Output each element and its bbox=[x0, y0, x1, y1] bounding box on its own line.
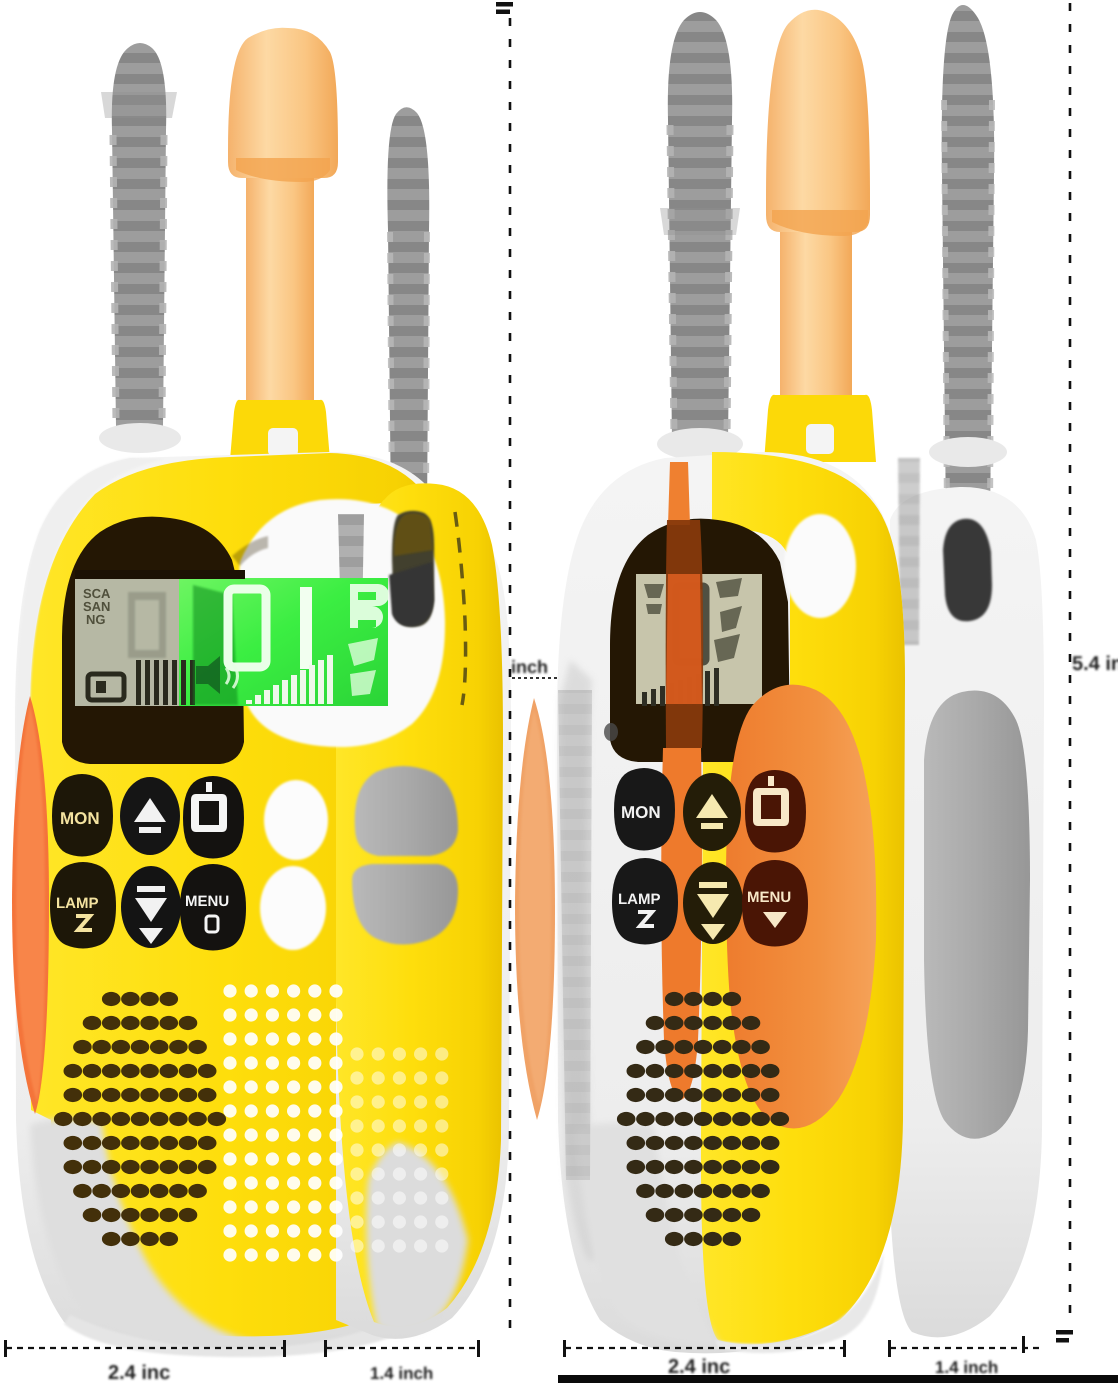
svg-text:2.4 inc: 2.4 inc bbox=[668, 1356, 730, 1378]
svg-text:MENU: MENU bbox=[185, 893, 229, 910]
svg-text:MON: MON bbox=[621, 803, 661, 822]
svg-text:MON: MON bbox=[60, 809, 100, 828]
svg-text:1.4 inch: 1.4 inch bbox=[935, 1358, 998, 1377]
svg-text:1.4 inch: 1.4 inch bbox=[370, 1364, 433, 1383]
svg-text:MENU: MENU bbox=[747, 889, 791, 906]
svg-text:inch: inch bbox=[511, 657, 548, 677]
svg-text:2.4 inc: 2.4 inc bbox=[108, 1362, 170, 1383]
svg-text:NG: NG bbox=[86, 612, 106, 627]
svg-text:5.4 in: 5.4 in bbox=[1072, 653, 1118, 675]
svg-text:LAMP: LAMP bbox=[618, 891, 661, 908]
svg-text:LAMP: LAMP bbox=[56, 895, 99, 912]
